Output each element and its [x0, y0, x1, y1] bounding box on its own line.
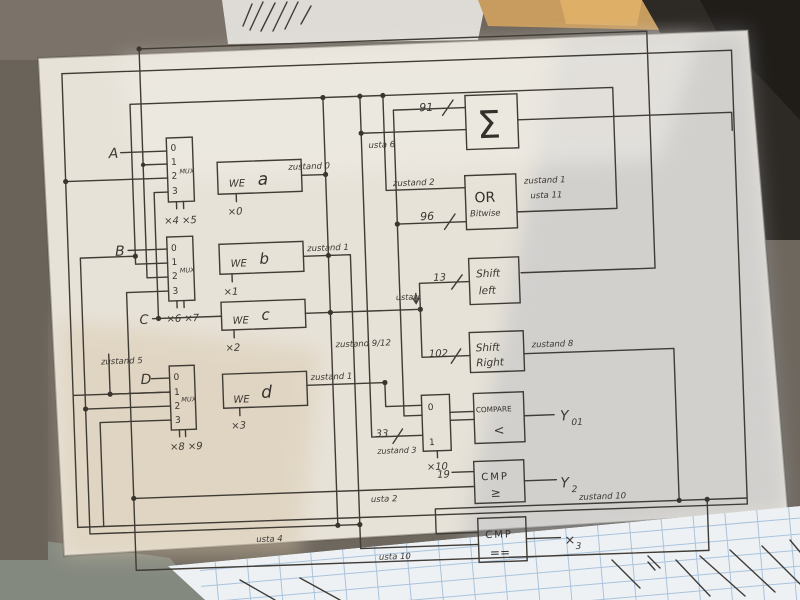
shl-bus-width: 13 — [433, 272, 446, 283]
wire-label-zustand0: zustand 0 — [287, 161, 330, 172]
input-c-label: C — [139, 313, 150, 328]
cmp-mux-port-1: 1 — [429, 438, 435, 448]
wire-label-zustand8: zustand 8 — [530, 339, 574, 351]
input-b-label: B — [115, 244, 125, 260]
compare-lt-label: COMPARE — [476, 404, 512, 414]
reg-a-we-label: WE — [229, 178, 246, 190]
mux-d-port-3: 3 — [175, 416, 181, 426]
wire-label-zustand912: zustand 9/12 — [334, 338, 391, 350]
reg-a-name: a — [257, 170, 268, 190]
output-y3-sub: 3 — [576, 542, 582, 552]
sum-unit-glyph: Σ — [476, 102, 502, 147]
sum-bus-width: 91 — [419, 101, 433, 114]
reg-b-we-label: WE — [230, 258, 247, 270]
wire-label-usta6: usta 6 — [368, 140, 395, 151]
or-unit-label: OR — [474, 190, 496, 207]
mux-b-port-3: 3 — [172, 287, 178, 297]
wire-label-zustand1d: zustand 1 — [309, 372, 352, 383]
cmp-bus-width: 33 — [375, 428, 388, 439]
reg-d-name: d — [261, 383, 273, 403]
cmp-mux-port-0: 0 — [428, 403, 434, 413]
cmp-ge-width: 19 — [437, 469, 450, 480]
mux-a-select-label: ×4 ×5 — [164, 215, 197, 227]
cmp-ge-op: ≥ — [491, 486, 502, 500]
mux-a-label: MUX — [179, 167, 195, 176]
shr-label-1: Shift — [476, 342, 501, 355]
input-d-label: D — [140, 372, 152, 388]
wire-label-usta2: usta 2 — [371, 494, 398, 505]
wire-label-usta4: usta 4 — [256, 534, 283, 545]
reg-b-name: b — [259, 250, 269, 268]
desk-left-strip — [0, 60, 48, 560]
mux-d-port-2: 2 — [174, 402, 180, 412]
mux-b-port-2: 2 — [172, 272, 178, 282]
mux-a-port-1: 1 — [171, 158, 177, 168]
wire-label-zustand2: zustand 2 — [392, 178, 435, 189]
wire-label-zustand11a: zustand 1 — [523, 175, 566, 186]
mux-a-port-3: 3 — [172, 187, 178, 197]
mux-d-port-1: 1 — [174, 388, 180, 398]
mux-b-port-0: 0 — [171, 244, 177, 254]
reg-c-we-label: WE — [232, 315, 249, 327]
mux-b-port-1: 1 — [171, 258, 177, 268]
reg-a-select: ×0 — [228, 206, 243, 218]
reg-c-name: c — [261, 306, 271, 324]
shl-label-1: Shift — [476, 267, 501, 280]
shl-label-2: left — [479, 285, 497, 298]
cmp-eq-op: == — [490, 545, 511, 560]
output-y3-base: × — [564, 533, 575, 548]
mux-b-label: MUX — [180, 266, 196, 275]
cmp-ge-label: CMP — [481, 471, 509, 483]
wire-label-usta10: usta 10 — [379, 552, 411, 563]
cmp-eq-label: CMP — [485, 529, 513, 541]
reg-d-select: ×3 — [231, 420, 246, 432]
wire-label-zustand3: zustand 3 — [376, 446, 417, 456]
reg-b-select: ×1 — [223, 287, 238, 299]
wire-label-ustaw: ustaw — [396, 292, 421, 302]
wire-label-zustand11b: usta 11 — [530, 190, 562, 201]
mux-a-port-2: 2 — [171, 172, 177, 182]
compare-lt-op: < — [493, 423, 504, 438]
mux-a-port-0: 0 — [170, 144, 176, 154]
reg-d-we-label: WE — [233, 394, 250, 406]
mux-d-select-label: ×8 ×9 — [170, 441, 203, 453]
photo-of-hand-drawn-datapath-diagram: A B C D 0 1 2 3 MUX ×4 ×5 0 1 2 3 MUX ×6… — [0, 0, 800, 600]
mux-d-label: MUX — [181, 395, 197, 404]
mux-d-port-0: 0 — [173, 373, 179, 383]
wire-label-zustand10: zustand 10 — [578, 491, 626, 503]
reg-c-select: ×2 — [225, 343, 240, 355]
or-unit-sublabel: Bitwise — [470, 208, 501, 219]
wood-highlight — [560, 0, 642, 26]
input-a-label: A — [107, 146, 118, 162]
mux-b-select-label: ×6 ×7 — [166, 313, 200, 325]
output-y01-sub: 01 — [571, 418, 583, 428]
shr-label-2: Right — [476, 356, 505, 369]
wire-label-zustand1: zustand 1 — [306, 243, 349, 254]
wire-label-zustand5: zustand 5 — [100, 356, 143, 367]
shr-bus-width: 102 — [429, 348, 448, 360]
output-y2-sub: 2 — [572, 485, 578, 495]
or-bus-width: 96 — [420, 210, 434, 223]
